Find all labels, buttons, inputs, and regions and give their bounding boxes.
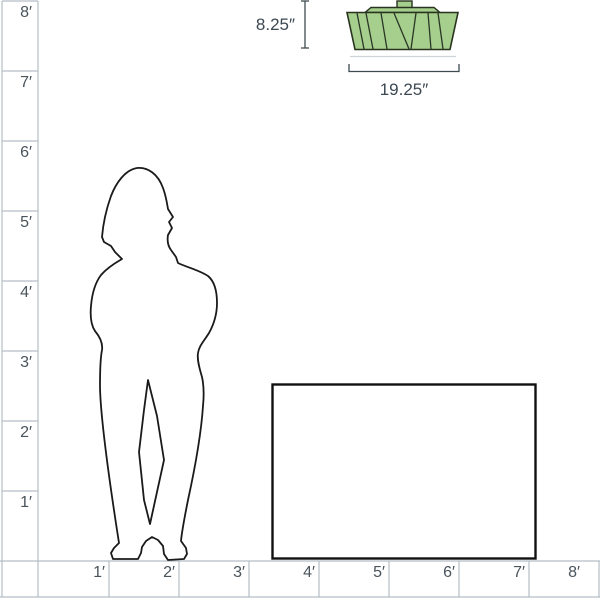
left-ruler-label-4ft: 4′ [2, 284, 32, 302]
left-ruler-label-6ft: 6′ [2, 144, 32, 162]
diagram-canvas [0, 0, 600, 600]
left-ruler-label-7ft: 7′ [2, 74, 32, 92]
bottom-ruler-label-6ft: 6′ [411, 564, 455, 582]
fixture-width-label: 19.25″ [354, 80, 454, 99]
scale-diagram: 8′ 7′ 6′ 5′ 4′ 3′ 2′ 1′ 1′ 2′ 3′ 4′ 5′ 6… [0, 0, 600, 600]
bottom-ruler-label-5ft: 5′ [341, 564, 385, 582]
left-ruler-label-2ft: 2′ [2, 424, 32, 442]
left-ruler-label-1ft: 1′ [2, 494, 32, 512]
bottom-ruler-label-2ft: 2′ [131, 564, 175, 582]
reference-table [273, 385, 536, 559]
bottom-ruler-label-4ft: 4′ [271, 564, 315, 582]
woman-silhouette [91, 168, 217, 560]
width-dimension-bracket [349, 64, 459, 72]
left-ruler-label-5ft: 5′ [2, 214, 32, 232]
bottom-ruler-label-8ft: 8′ [536, 564, 580, 582]
bottom-ruler-label-3ft: 3′ [201, 564, 245, 582]
bottom-ruler-label-1ft: 1′ [61, 564, 105, 582]
height-dimension-line [301, 1, 309, 48]
left-ruler-label-8ft: 8′ [2, 4, 32, 22]
fixture-height-label: 8.25″ [256, 15, 295, 34]
bottom-ruler-label-7ft: 7′ [481, 564, 525, 582]
ceiling-fixture [347, 1, 458, 57]
left-ruler-label-3ft: 3′ [2, 354, 32, 372]
